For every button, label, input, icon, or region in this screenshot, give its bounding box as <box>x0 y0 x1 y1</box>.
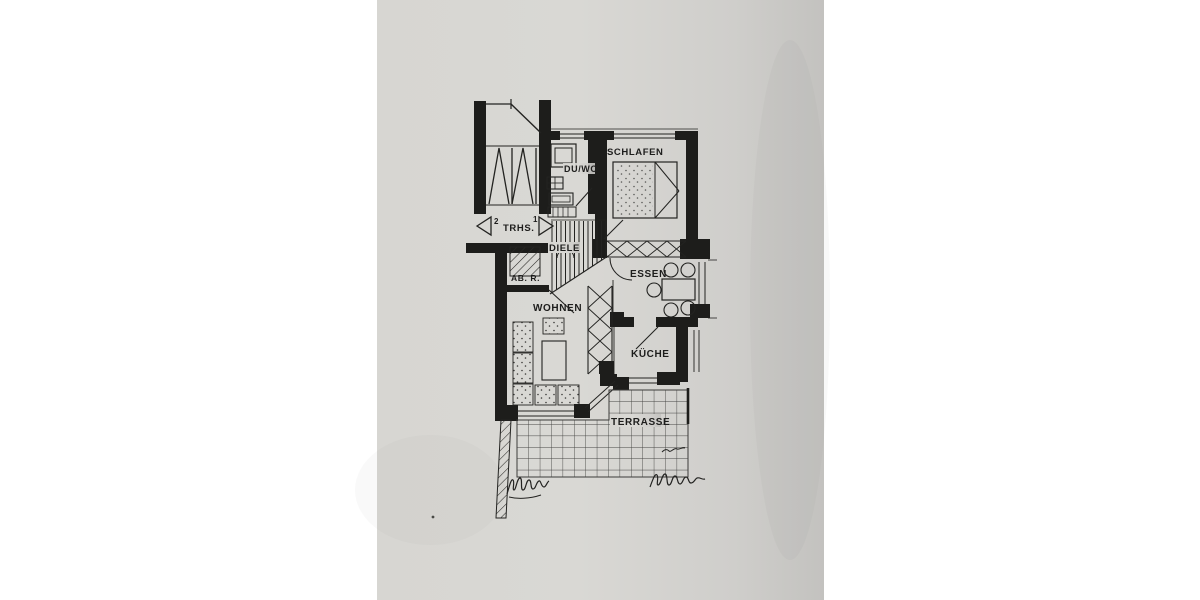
stair-number-1: 1 <box>533 215 538 224</box>
left-margin <box>0 0 377 600</box>
sideboard <box>543 318 564 334</box>
room-label-essen: ESSEN <box>630 269 667 280</box>
stair-number-2: 2 <box>494 217 499 226</box>
stair-label-trhs: TRHS. <box>503 223 535 234</box>
room-label-terrasse: TERRASSE <box>611 417 670 428</box>
room-label-schlafen: SCHLAFEN <box>607 147 664 158</box>
paper-sheet <box>355 0 830 600</box>
room-label-duwc: DU/WC <box>564 164 598 174</box>
chimney-shaft <box>510 247 540 276</box>
room-label-kueche: KÜCHE <box>631 347 670 360</box>
floor-plan-photo: 2 TRHS. 1 AB. R. <box>0 0 1200 600</box>
room-label-wohnen: WOHNEN <box>533 303 582 314</box>
paper-crease-shadow <box>355 435 505 545</box>
right-margin <box>824 0 1200 600</box>
room-label-diele: DIELE <box>549 243 580 254</box>
paper-edge-shade <box>750 40 830 560</box>
floor-plan-canvas: 2 TRHS. 1 AB. R. <box>0 0 1200 600</box>
room-label-abstellraum: AB. R. <box>511 273 540 283</box>
paper-speck <box>432 516 435 519</box>
